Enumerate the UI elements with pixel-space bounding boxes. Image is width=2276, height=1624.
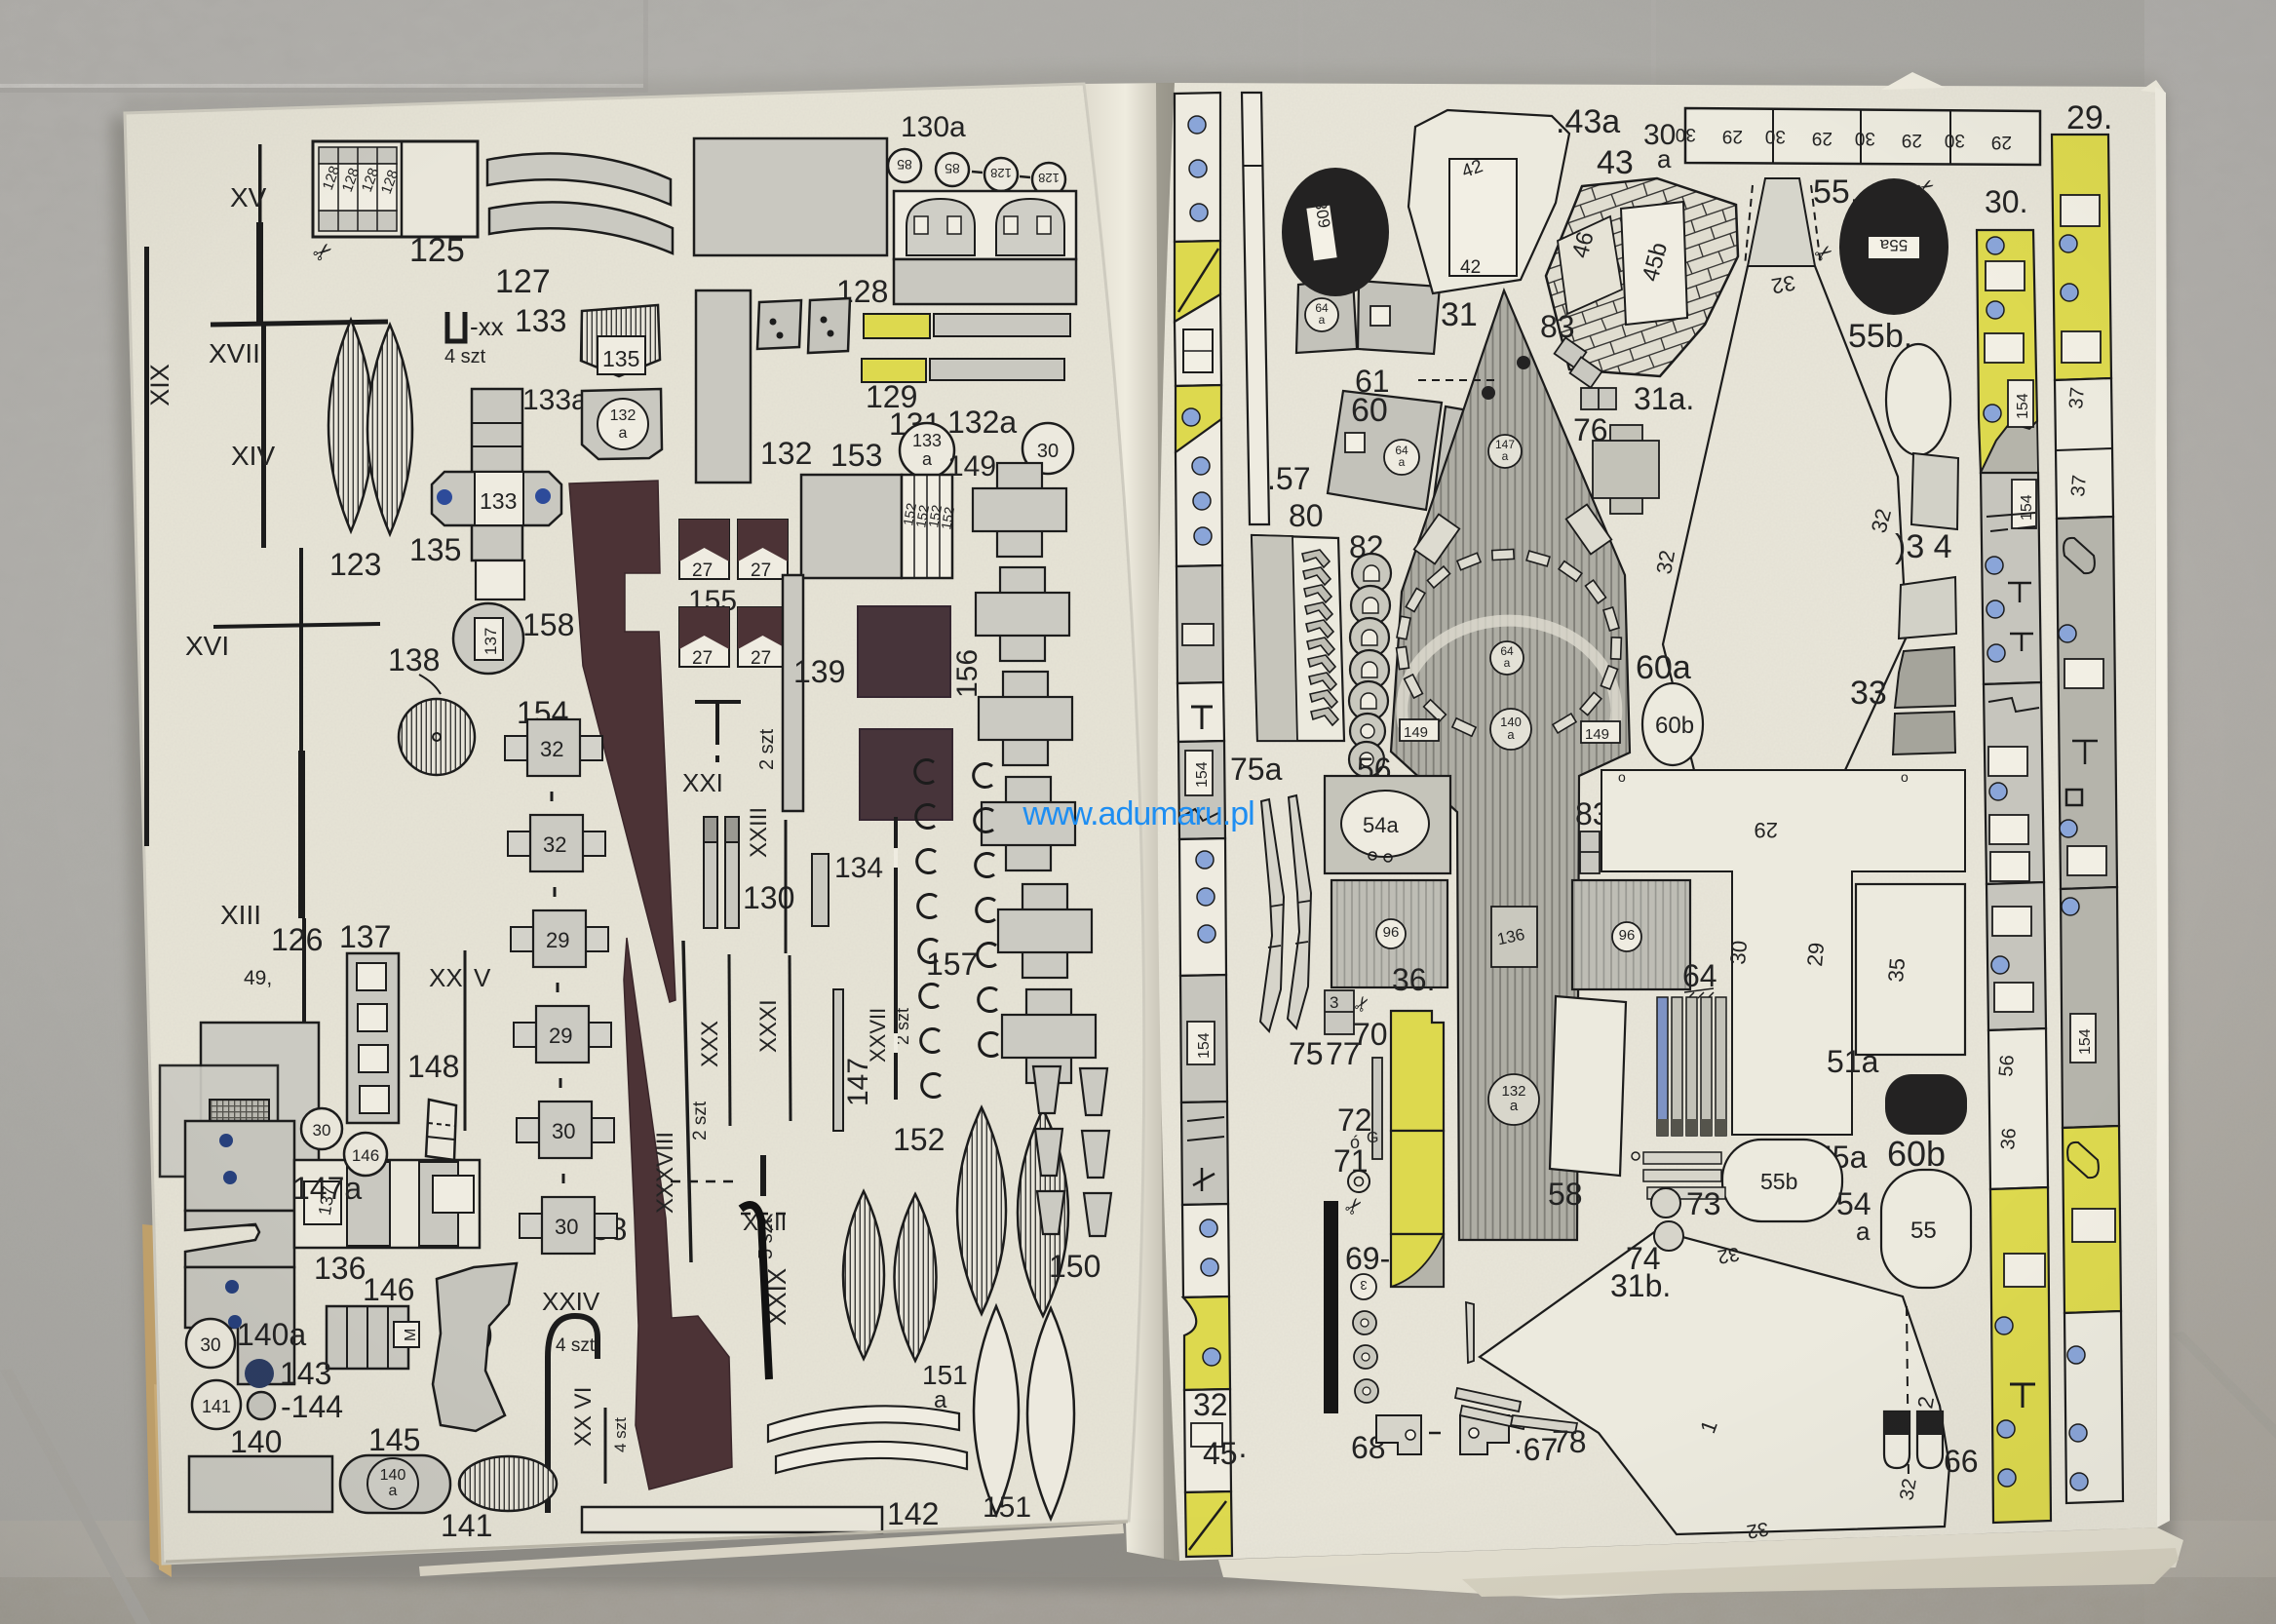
svg-text:www.adumaru.pl: www.adumaru.pl	[1022, 795, 1254, 832]
